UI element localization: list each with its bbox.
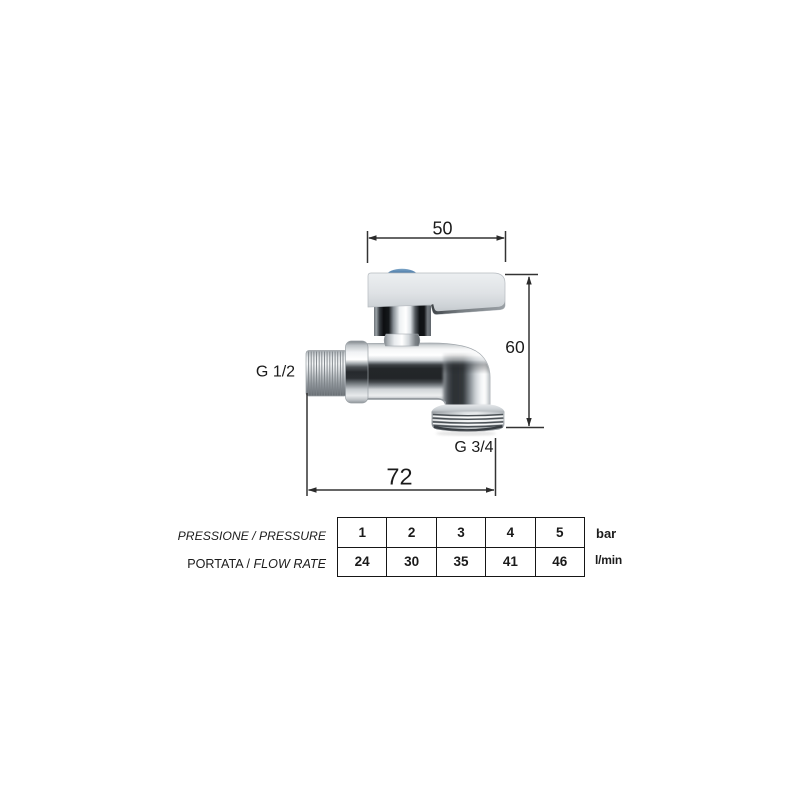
svg-text:50: 50 [432, 218, 452, 238]
svg-text:72: 72 [386, 464, 412, 490]
svg-text:G 1/2: G 1/2 [256, 364, 295, 381]
svg-text:60: 60 [505, 337, 525, 357]
svg-text:G 3/4: G 3/4 [454, 439, 493, 456]
